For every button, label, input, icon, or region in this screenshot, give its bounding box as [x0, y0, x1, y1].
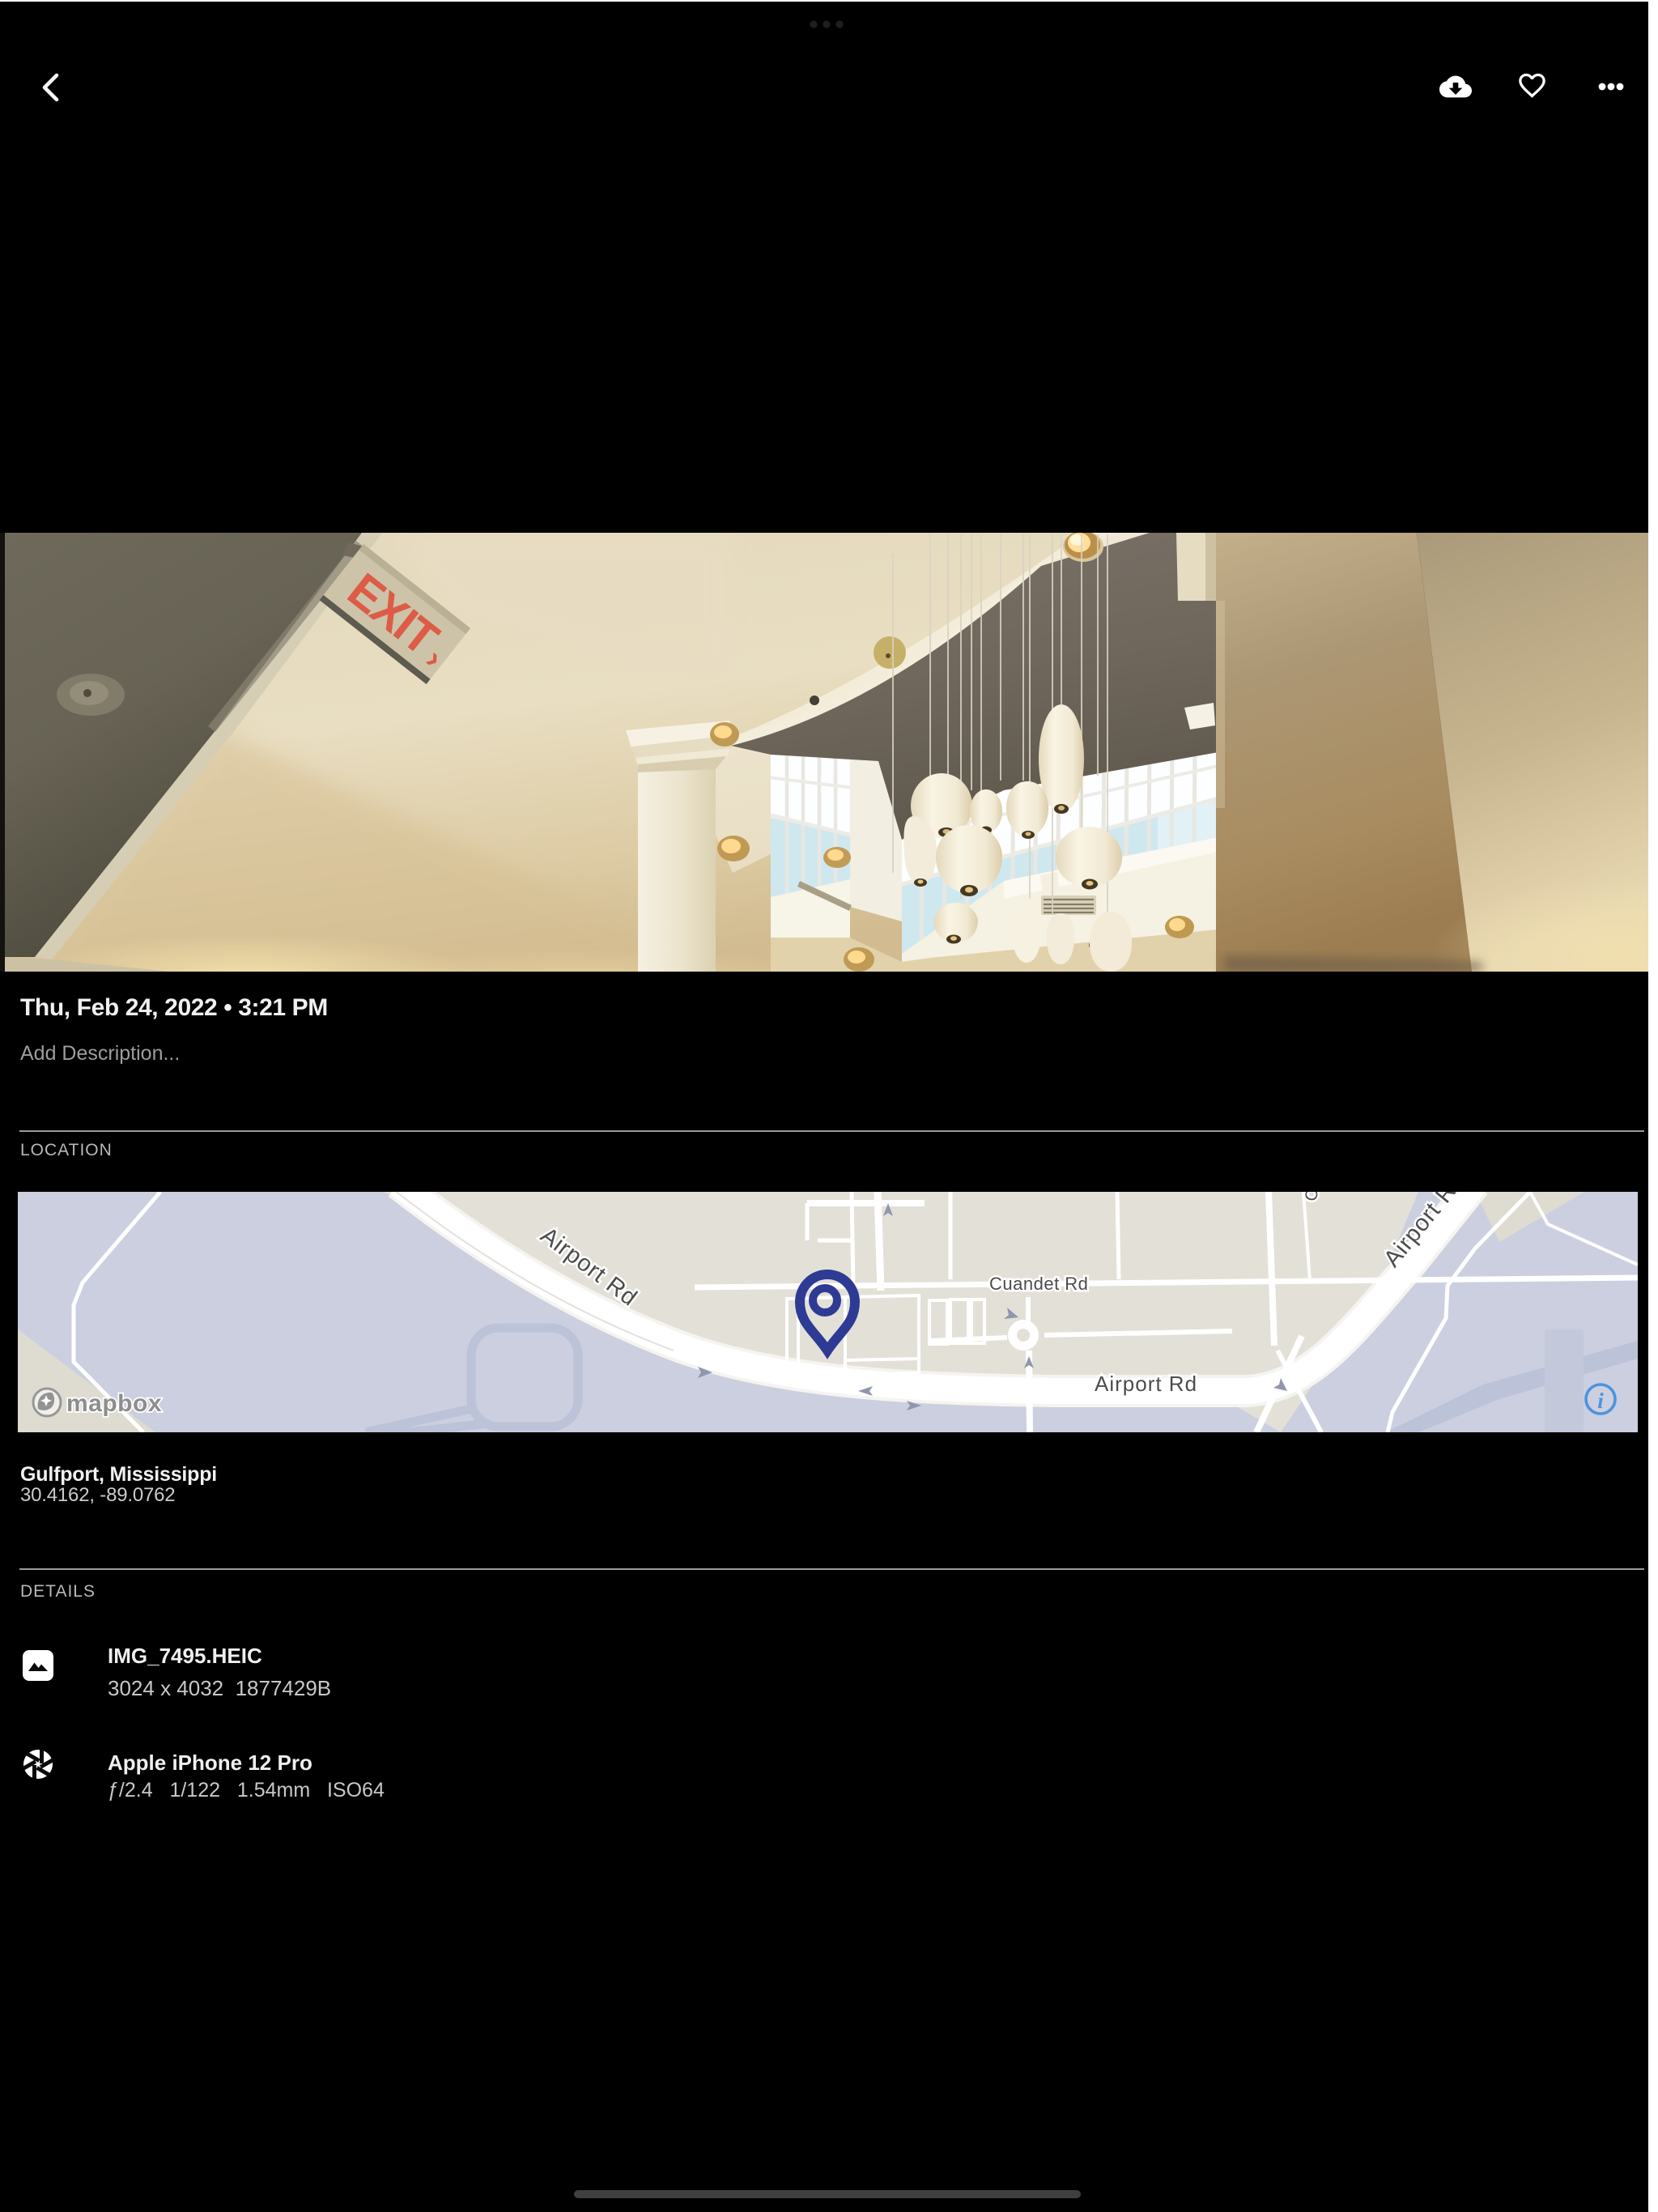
- svg-text:Airport Rd: Airport Rd: [1095, 1372, 1197, 1396]
- svg-text:i: i: [1597, 1389, 1604, 1413]
- svg-text:Cuandet Rd: Cuandet Rd: [989, 1274, 1088, 1294]
- svg-text:mapbox: mapbox: [66, 1390, 162, 1417]
